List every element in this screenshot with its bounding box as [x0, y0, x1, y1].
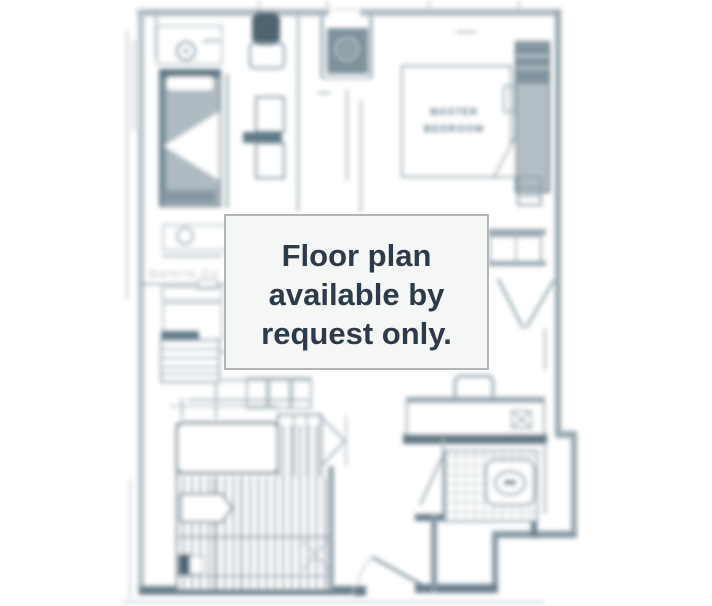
svg-text:MASTER: MASTER — [430, 107, 478, 118]
svg-text:Galerie Co: Galerie Co — [149, 268, 219, 280]
svg-text:BEDROOM: BEDROOM — [424, 124, 485, 135]
